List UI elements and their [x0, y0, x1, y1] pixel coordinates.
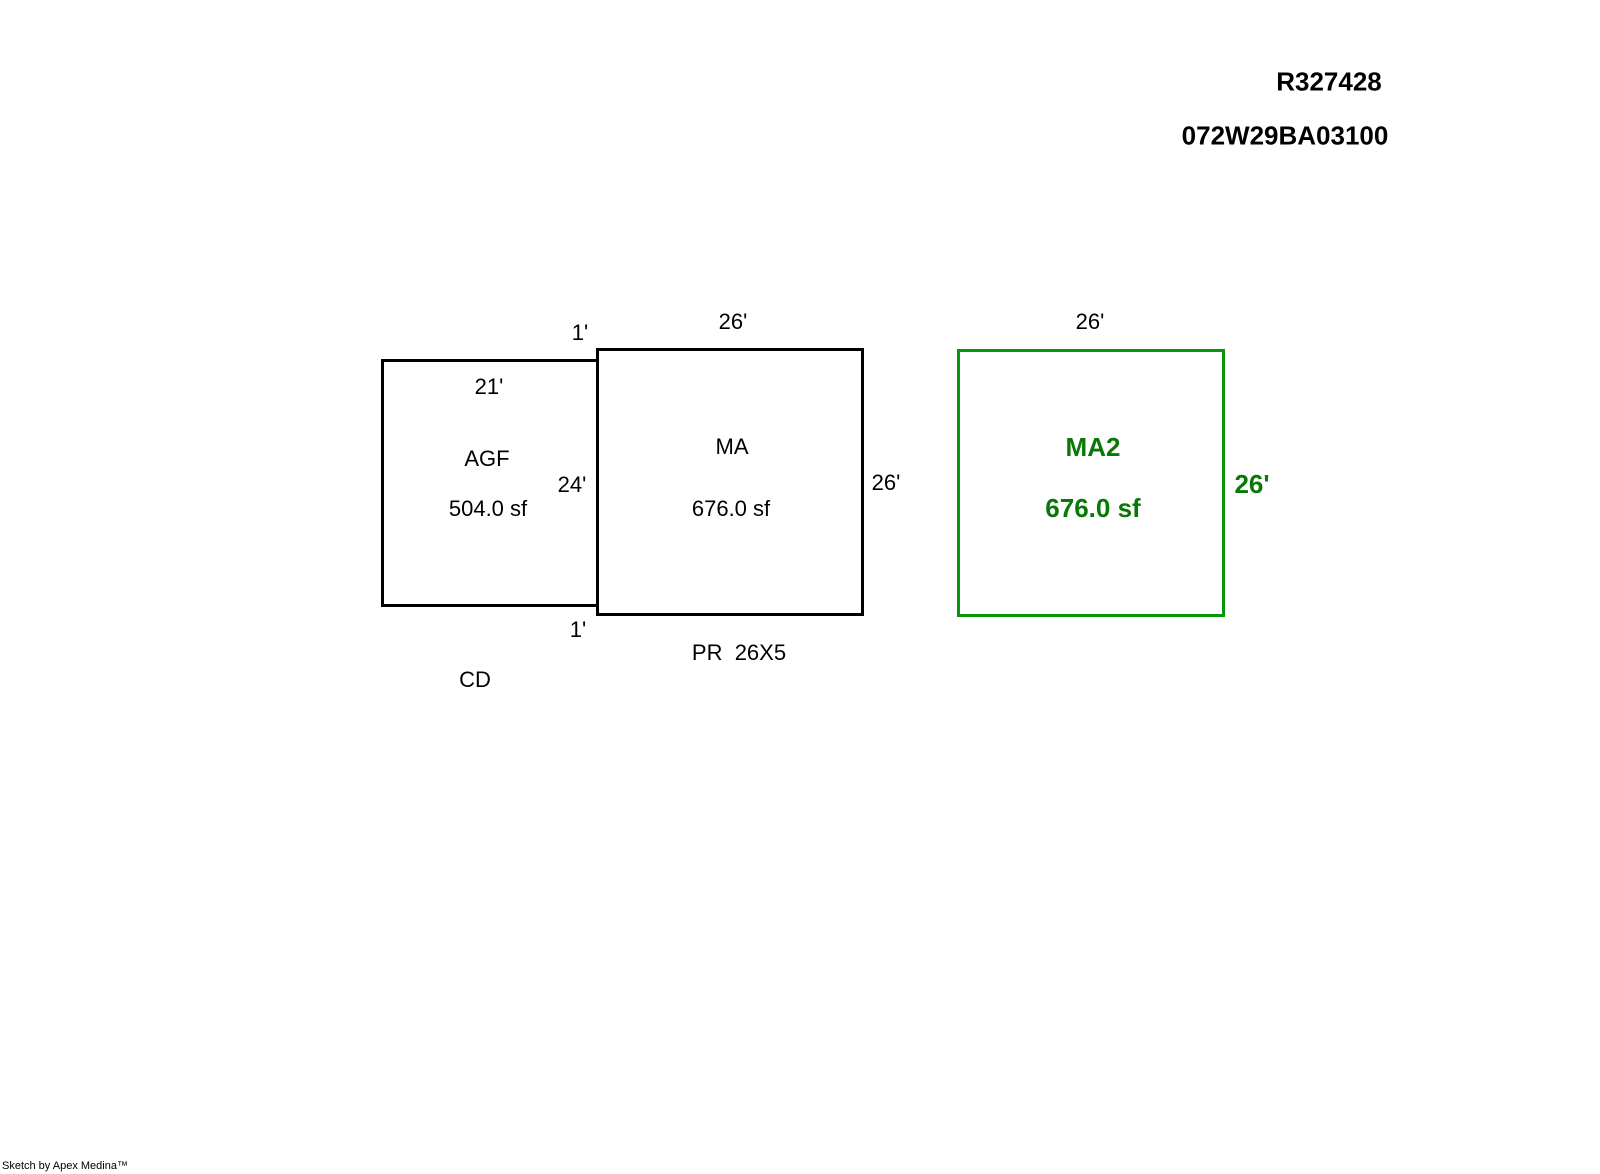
agf-right-dim: 24' — [558, 474, 587, 496]
record-id: R327428 — [1276, 67, 1382, 98]
sketch-page: R327428 072W29BA03100 1' 1' 21' AGF 504.… — [0, 0, 1600, 1174]
ma2-outline — [957, 349, 1225, 617]
ma-name: MA — [716, 436, 749, 458]
ma-outline — [596, 348, 864, 616]
ma2-top-dim: 26' — [1076, 311, 1105, 333]
ma-top-dim: 26' — [719, 311, 748, 333]
ma-right-dim: 26' — [872, 472, 901, 494]
ma-area: 676.0 sf — [692, 498, 770, 520]
parcel-id: 072W29BA03100 — [1182, 121, 1389, 152]
cd-annotation: CD — [459, 669, 491, 691]
agf-area: 504.0 sf — [449, 498, 527, 520]
agf-top-dim: 21' — [475, 376, 504, 398]
ma2-area: 676.0 sf — [1045, 495, 1140, 521]
sketch-credit: Sketch by Apex Medina™ — [2, 1160, 128, 1172]
offset-bottom-dim: 1' — [570, 619, 586, 641]
agf-name: AGF — [464, 448, 509, 470]
ma2-name: MA2 — [1066, 434, 1121, 460]
pr-annotation: PR 26X5 — [692, 642, 786, 664]
ma2-right-dim: 26' — [1234, 471, 1269, 497]
offset-top-dim: 1' — [572, 322, 588, 344]
